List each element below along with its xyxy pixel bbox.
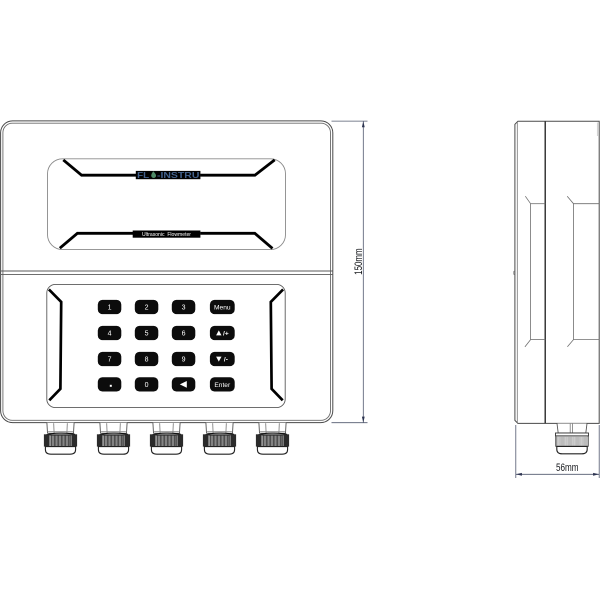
svg-text:3: 3: [182, 305, 186, 312]
svg-text:4: 4: [108, 331, 112, 338]
svg-text:Ultrasonic Flowmeter: Ultrasonic Flowmeter: [142, 232, 191, 238]
svg-text:Menu: Menu: [214, 305, 231, 312]
svg-text:8: 8: [145, 357, 149, 364]
svg-text:150mm: 150mm: [353, 248, 365, 275]
svg-text:FL: FL: [137, 171, 149, 180]
svg-text:7: 7: [108, 357, 112, 364]
svg-text:1: 1: [108, 305, 112, 312]
svg-text:2: 2: [145, 305, 149, 312]
svg-text:6: 6: [182, 331, 186, 338]
svg-text:-INSTRU: -INSTRU: [157, 171, 200, 180]
svg-text:0: 0: [145, 382, 149, 389]
svg-text:56mm: 56mm: [556, 462, 579, 474]
svg-text:/-: /-: [224, 357, 228, 364]
svg-text:Enter: Enter: [214, 382, 231, 389]
svg-text:/+: /+: [223, 331, 229, 338]
svg-text:9: 9: [182, 357, 186, 364]
svg-text:5: 5: [145, 331, 149, 338]
